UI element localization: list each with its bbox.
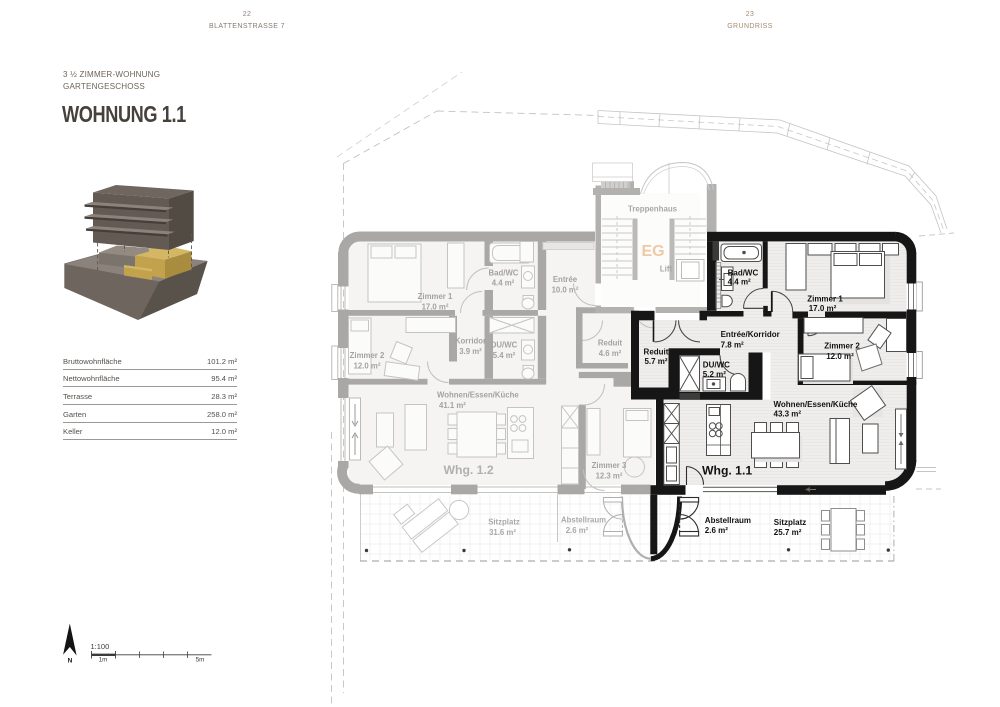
svg-text:4.4 m²: 4.4 m² — [492, 279, 515, 288]
svg-text:5.7 m²: 5.7 m² — [644, 357, 667, 366]
svg-text:25.7 m²: 25.7 m² — [774, 528, 802, 537]
svg-text:2.6 m²: 2.6 m² — [705, 526, 728, 535]
svg-text:2.6 m²: 2.6 m² — [566, 526, 589, 535]
svg-text:4.4 m²: 4.4 m² — [728, 278, 751, 287]
svg-text:5.4 m²: 5.4 m² — [493, 351, 516, 360]
svg-text:17.0 m²: 17.0 m² — [422, 303, 449, 312]
svg-text:Abstellraum: Abstellraum — [705, 516, 751, 525]
svg-text:12.0 m²: 12.0 m² — [354, 362, 381, 371]
svg-text:Abstellraum: Abstellraum — [561, 516, 606, 525]
svg-text:DU/WC: DU/WC — [703, 360, 730, 369]
svg-text:43.3 m²: 43.3 m² — [774, 410, 802, 419]
svg-text:12.3 m²: 12.3 m² — [596, 472, 623, 481]
svg-text:Korridor: Korridor — [455, 337, 486, 346]
svg-text:Zimmer 3: Zimmer 3 — [592, 461, 627, 470]
svg-text:Sitzplatz: Sitzplatz — [488, 518, 520, 527]
svg-text:5.2 m²: 5.2 m² — [703, 370, 726, 379]
svg-text:Reduit: Reduit — [644, 347, 669, 356]
svg-text:5m: 5m — [196, 657, 205, 664]
svg-text:4.6 m²: 4.6 m² — [599, 349, 622, 358]
svg-text:DU/WC: DU/WC — [491, 341, 518, 350]
svg-text:7.8 m²: 7.8 m² — [721, 340, 744, 349]
svg-text:Lift: Lift — [660, 265, 673, 274]
svg-text:Zimmer 1: Zimmer 1 — [807, 295, 843, 304]
svg-text:EG: EG — [641, 243, 664, 260]
svg-text:Wohnen/Essen/Küche: Wohnen/Essen/Küche — [774, 400, 858, 409]
svg-text:Zimmer 2: Zimmer 2 — [350, 351, 385, 360]
svg-text:41.1 m²: 41.1 m² — [439, 401, 466, 410]
svg-text:Whg. 1.1: Whg. 1.1 — [702, 464, 752, 478]
svg-text:Wohnen/Essen/Küche: Wohnen/Essen/Küche — [437, 391, 519, 400]
svg-text:Zimmer 1: Zimmer 1 — [418, 292, 453, 301]
svg-text:31.6 m²: 31.6 m² — [489, 528, 516, 537]
svg-text:Entrée: Entrée — [553, 275, 578, 284]
svg-text:Bad/WC: Bad/WC — [489, 269, 519, 278]
svg-text:Sitzplatz: Sitzplatz — [774, 518, 806, 527]
svg-text:Bad/WC: Bad/WC — [728, 268, 759, 277]
svg-text:Entrée/Korridor: Entrée/Korridor — [721, 330, 780, 339]
svg-text:1m: 1m — [99, 657, 108, 664]
svg-text:1:100: 1:100 — [91, 642, 110, 651]
svg-text:3.9 m²: 3.9 m² — [459, 347, 482, 356]
svg-text:Reduit: Reduit — [598, 339, 623, 348]
svg-text:Whg. 1.2: Whg. 1.2 — [444, 463, 494, 477]
svg-text:Treppenhaus: Treppenhaus — [628, 205, 678, 214]
svg-text:Zimmer 2: Zimmer 2 — [824, 341, 860, 350]
svg-text:17.0 m²: 17.0 m² — [809, 304, 837, 313]
svg-text:N: N — [68, 658, 73, 665]
svg-text:12.0 m²: 12.0 m² — [826, 352, 854, 361]
